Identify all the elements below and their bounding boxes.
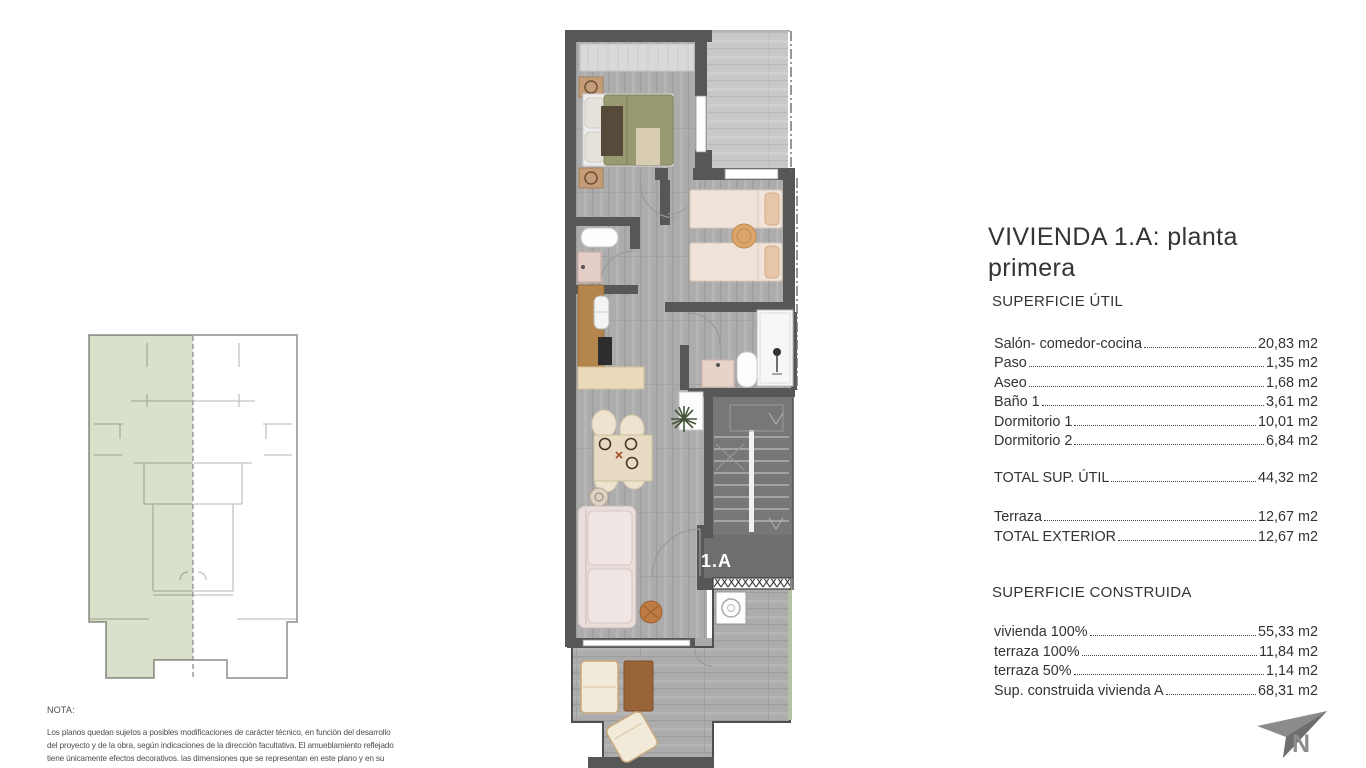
area-row: Paso1,35 m2 [994, 352, 1318, 372]
area-row: Dormitorio 110,01 m2 [994, 410, 1318, 430]
area-row: Terraza12,67 m2 [994, 506, 1318, 526]
superficie-construida-rows: vivienda 100% 55,33 m2 terraza 100%11,84… [994, 621, 1318, 699]
area-row: Salón- comedor-cocina20,83 m2 [994, 332, 1318, 352]
chair [592, 410, 616, 438]
note-line: del proyecto y de la obra, según indicac… [47, 739, 507, 752]
side-table [590, 488, 608, 506]
outdoor-table [624, 661, 653, 711]
shower [757, 310, 793, 386]
toilet [737, 352, 757, 387]
window-bedroom1 [696, 96, 706, 152]
area-row: terraza 50%1,14 m2 [994, 660, 1318, 680]
dining-set [592, 410, 652, 492]
page-title: VIVIENDA 1.A: planta primera [988, 222, 1318, 284]
north-label: N [1292, 730, 1310, 759]
key-plan [86, 331, 300, 685]
unit-label: 1.A [701, 551, 732, 571]
cooktop [598, 337, 612, 365]
glass-balustrade [788, 590, 792, 720]
terrace-upper-floor [707, 32, 788, 172]
area-row: Baño 13,61 m2 [994, 391, 1318, 411]
washing-machine [716, 592, 746, 624]
toilet [581, 228, 618, 247]
area-row: Dormitorio 26,84 m2 [994, 430, 1318, 450]
note-line: tiene únicamente efectos decorativos. la… [47, 752, 507, 765]
wardrobe [580, 44, 694, 71]
plan-sheet: 1.A VIVIENDA 1.A: planta primera SUPERFI… [0, 0, 1366, 768]
superficie-construida-heading: SUPERFICIE CONSTRUIDA [992, 584, 1318, 602]
note-line: Los planos quedan sujetos a posibles mod… [47, 726, 507, 739]
dining-table [594, 435, 652, 481]
superficie-util-rows: Salón- comedor-cocina20,83 m2 Paso1,35 m… [994, 332, 1318, 545]
round-rug [732, 224, 756, 248]
superficie-util-heading: SUPERFICIE ÚTIL [992, 293, 1318, 311]
north-arrow: N [1252, 706, 1342, 766]
vent-grille [713, 578, 791, 589]
floor-plan: 1.A [558, 25, 806, 768]
window-living [583, 640, 690, 646]
info-panel: VIVIENDA 1.A: planta primera SUPERFICIE … [988, 222, 1318, 699]
note-block: NOTA: Los planos quedan sujetos a posibl… [47, 705, 507, 765]
kitchen-counter-cream [578, 367, 644, 389]
area-row: vivienda 100% 55,33 m2 [994, 621, 1318, 641]
total-util-row: TOTAL SUP. ÚTIL44,32 m2 [994, 466, 1318, 486]
area-row: Sup. construida vivienda A68,31 m2 [994, 679, 1318, 699]
area-row: Aseo1,68 m2 [994, 371, 1318, 391]
note-heading: NOTA: [47, 705, 507, 715]
total-exterior-row: TOTAL EXTERIOR12,67 m2 [994, 525, 1318, 545]
nightstand [579, 168, 603, 188]
area-row: terraza 100%11,84 m2 [994, 640, 1318, 660]
window-bedroom2 [725, 169, 778, 179]
